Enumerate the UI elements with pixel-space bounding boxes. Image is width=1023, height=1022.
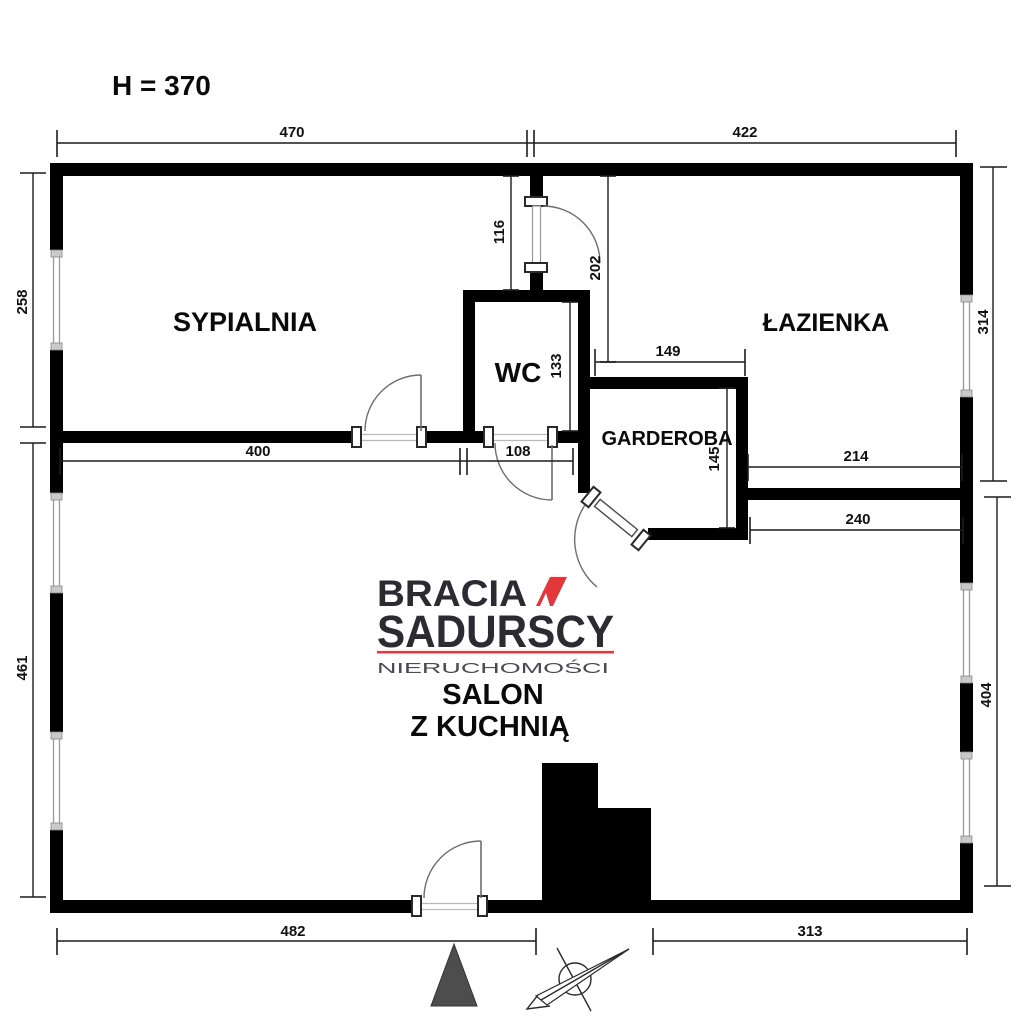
logo-divider [377, 651, 614, 654]
north-triangle [431, 944, 477, 1006]
wall-right-seg1 [960, 163, 973, 295]
wall-left-seg4 [50, 830, 63, 913]
wall-wc-west [463, 290, 475, 443]
dim-bottom-left: 482 [280, 923, 305, 940]
logo-brand-line2: SADURSCY [377, 606, 614, 657]
wall-bedroom-south-2 [426, 431, 463, 443]
dim-right-upper: 314 [975, 309, 992, 335]
wall-left-seg1 [50, 163, 63, 250]
bedroom-door [352, 375, 426, 447]
room-label-wardrobe: GARDEROBA [601, 428, 732, 450]
compass-icon [527, 948, 629, 1011]
dim-wardrobe-width: 149 [655, 343, 680, 360]
windows [51, 250, 972, 843]
wall-left-seg3 [50, 593, 63, 732]
dim-wc-depth: 133 [548, 353, 565, 378]
room-labels: SYPIALNIA ŁAZIENKA WC GARDEROBA SALON Z … [173, 307, 889, 743]
living-door-arc [424, 841, 481, 898]
dim-living-wall-right: 240 [845, 511, 870, 528]
kitchen-block [542, 763, 651, 900]
wall-bedroom-south-1 [63, 431, 352, 443]
dim-top-right: 422 [732, 124, 757, 141]
dim-left-lower: 461 [14, 655, 31, 680]
dim-hall-depth: 202 [587, 255, 604, 280]
window-living-right-1 [961, 583, 972, 683]
dim-bath-wall: 214 [843, 448, 869, 465]
window-bathroom [961, 295, 972, 397]
ceiling-height-label: H = 370 [112, 70, 211, 101]
window-bedroom [51, 250, 62, 350]
entry-door-arc [543, 206, 600, 263]
wall-wc-east-wardrobe-west [578, 290, 590, 493]
wall-wc-south-stub-1 [475, 431, 484, 443]
logo-mark-icon [536, 577, 567, 606]
wall-wc-north [463, 290, 590, 302]
room-label-bedroom: SYPIALNIA [173, 307, 317, 337]
room-label-living-1: SALON [442, 679, 544, 711]
bedroom-door-arc [365, 375, 421, 431]
wardrobe-door-arc [575, 505, 597, 587]
floorplan-page: H = 370 [0, 0, 1023, 1022]
wall-right-seg4 [960, 843, 973, 913]
wall-bottom-left [50, 900, 421, 913]
dim-hall-width: 116 [491, 220, 508, 244]
dimension-lines [20, 130, 1011, 955]
window-living-left-2 [51, 732, 62, 830]
wall-entry-stub-top [530, 176, 543, 197]
floorplan-drawing: H = 370 [0, 0, 1023, 1022]
wall-wardrobe-south [648, 528, 748, 540]
dimension-labels: 470 422 258 461 314 404 116 202 133 149 … [14, 124, 995, 940]
wardrobe-door [575, 487, 651, 587]
dim-wc-door: 108 [505, 443, 530, 460]
dim-top-left: 470 [279, 124, 304, 141]
living-door [412, 841, 487, 916]
window-living-right-2 [961, 752, 972, 843]
wall-left-seg2 [50, 350, 63, 493]
wall-top [50, 163, 973, 176]
room-label-bathroom: ŁAZIENKA [763, 309, 889, 337]
dim-right-lower: 404 [978, 682, 995, 708]
wall-bottom-right [478, 900, 973, 913]
window-living-left-1 [51, 493, 62, 593]
wall-right-seg3 [960, 683, 973, 752]
dim-wardrobe-depth: 145 [706, 446, 723, 471]
dim-bottom-right: 313 [797, 923, 822, 940]
agency-logo: BRACIA SADURSCY NIERUCHOMOŚCI [377, 573, 614, 677]
dim-bedroom-width: 400 [245, 443, 270, 460]
dim-left-upper: 258 [14, 289, 31, 314]
wall-bathroom-south [736, 488, 973, 500]
room-label-living-2: Z KUCHNIĄ [410, 711, 570, 743]
room-label-wc: WC [495, 357, 542, 388]
wall-entry-stub-bottom [530, 273, 543, 290]
wall-wardrobe-east [736, 377, 748, 540]
wc-door [484, 427, 557, 500]
logo-tagline: NIERUCHOMOŚCI [377, 659, 609, 677]
